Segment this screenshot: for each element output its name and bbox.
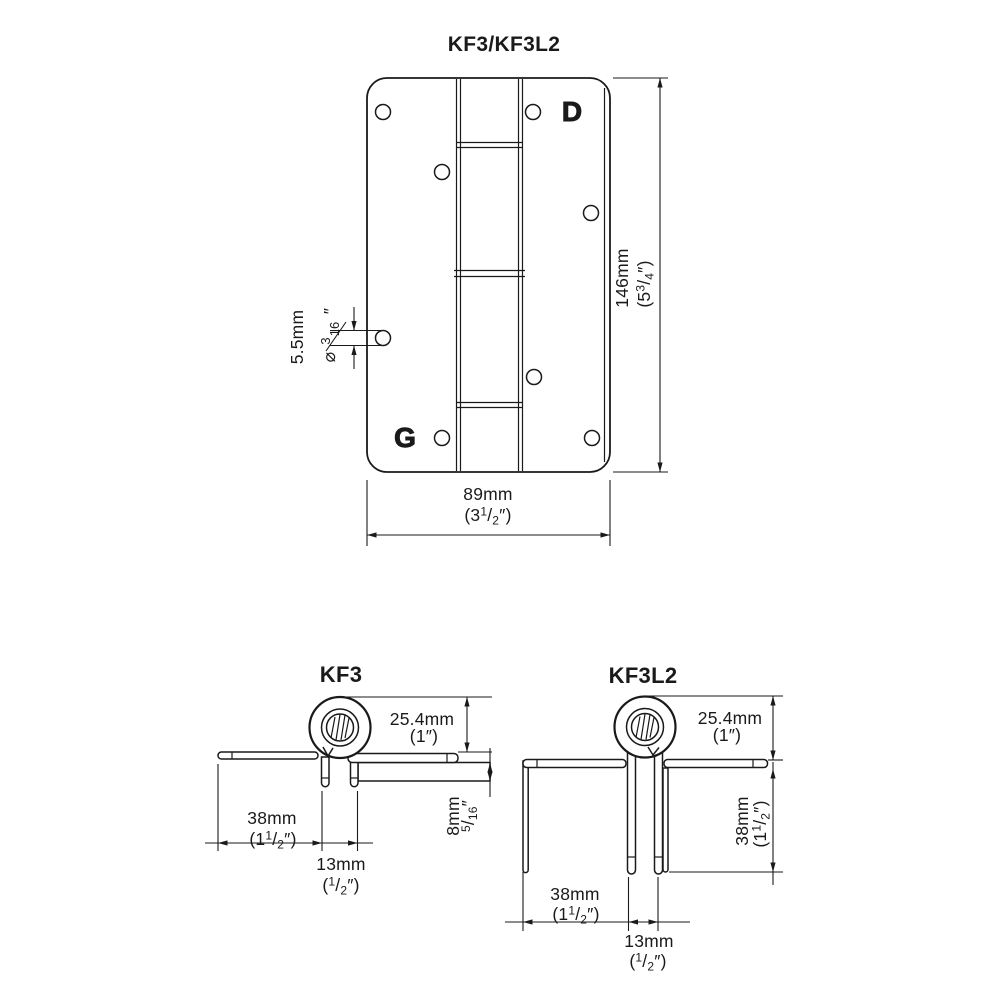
kf3l2-leaf-mm: 38mm [550,884,599,904]
screw-holes [376,105,600,446]
hole-in-num: 3 [318,337,333,344]
kf3l2-section: KF3L2 [505,663,783,974]
kf3l2-skirt-mm: 38mm [732,796,752,845]
kf3l2-dim-skirt: 38mm (11/2″) [669,762,783,885]
diagram-canvas: KF3/KF3L2 D [0,0,1000,1000]
plate-height-mm: 146mm [612,248,632,307]
kf3l2-left-leaf [523,760,626,768]
screw-hole [526,105,541,120]
screw-hole [376,105,391,120]
screw-hole [584,206,599,221]
screw-hole [527,370,542,385]
kf3l2-title: KF3L2 [609,663,678,688]
kf3-dim-bottom: 38mm (11/2″) 13mm (1/2″) [205,764,373,898]
barrel-channel [454,79,525,471]
kf3l2-kerf-in: (1/2″) [629,951,666,974]
front-view: KF3/KF3L2 D [287,33,668,546]
kf3-leaf-mm: 38mm [247,808,296,828]
kf3-right-leaf [348,754,458,763]
hole-dia-symbol: ⌀ [319,352,339,363]
kf3l2-knuckle [615,697,676,758]
g-brand-logo-icon: G [394,422,416,453]
kf3l2-dim-bottom: 38mm (11/2″) 13mm (1/2″) [505,872,690,974]
hinge-spec-diagram: KF3/KF3L2 D [0,0,1000,1000]
dim-hole-diameter: 5.5mm ⌀ 3 16 ″ [287,307,383,369]
dim-plate-height: 146mm (53/4″) [612,78,668,472]
screw-hole [435,431,450,446]
kf3-kerf-in: (1/2″) [322,875,359,898]
kf3l2-skirt-in: (11/2″) [750,800,773,847]
screw-hole [585,431,600,446]
kf3l2-left-skirt [523,761,528,873]
kf3-title: KF3 [320,662,362,687]
kf3-kerf-mm: 13mm [316,854,365,874]
plate-height-in: (53/4″) [634,260,657,307]
kf3-knuckle [310,697,371,758]
screw-hole-dimensioned [376,331,391,346]
front-title: KF3/KF3L2 [448,33,560,56]
kf3l2-right-skirt [663,768,668,872]
kf3-lower-leaf [358,763,490,782]
kf3l2-right-leaf [664,760,768,768]
kf3l2-kerf-prongs [628,752,663,874]
hole-in-unit: ″ [320,308,340,314]
kf3-knuckle-in: (1″) [410,726,438,746]
plate-width-in: (31/2″) [464,505,511,528]
kf3-leaf-in: (11/2″) [249,829,296,852]
kf3-section: KF3 [205,662,493,898]
kf3l2-knuckle-in: (1″) [713,725,741,745]
screw-hole [435,165,450,180]
dim-plate-width: 89mm (31/2″) [367,480,610,546]
plate-width-mm: 89mm [463,484,512,504]
kf3-left-leaf [218,752,318,759]
hinge-plate-outline [367,78,610,472]
kf3l2-kerf-mm: 13mm [624,931,673,951]
d-brand-logo-icon: D [562,96,582,127]
kf3l2-leaf-in: (11/2″) [552,904,599,927]
hole-in-den: 16 [327,322,342,336]
hole-mm: 5.5mm [287,310,307,364]
